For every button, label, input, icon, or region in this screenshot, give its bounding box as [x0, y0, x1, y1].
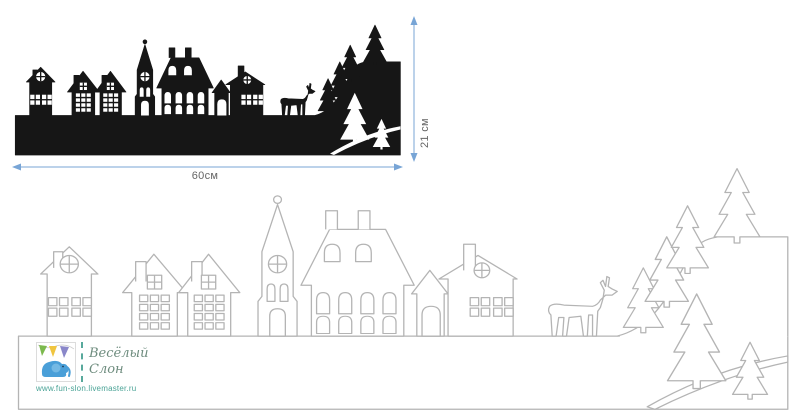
village-silhouette-preview [12, 15, 403, 157]
arched-door [141, 101, 149, 116]
chimney [464, 244, 476, 270]
chimney [102, 75, 107, 86]
spire-knob [274, 196, 282, 203]
deer [281, 83, 315, 115]
elephant-ear [52, 364, 61, 373]
deer [549, 277, 618, 337]
arched-door [217, 99, 226, 115]
house-3 [179, 254, 240, 336]
chimney [136, 262, 146, 282]
fir-tree [667, 206, 709, 274]
fir-tree [364, 25, 387, 65]
manor-house [157, 48, 214, 116]
church-tower [135, 40, 155, 116]
chimney [74, 75, 79, 86]
manor-house [301, 211, 414, 336]
logo: Весёлый Слон www.fun-slon.livemaster.ru [36, 342, 176, 393]
chimney [326, 211, 338, 230]
house-3 [95, 71, 126, 115]
page-canvas: 60см 21 см [0, 0, 800, 418]
chimney [358, 211, 370, 230]
chimney [185, 48, 191, 58]
church-tower [258, 196, 297, 336]
house-2 [123, 254, 187, 336]
village-scene [15, 25, 400, 155]
arched-door [270, 309, 286, 336]
elephant-logo-icon [36, 342, 76, 382]
spire-knob [143, 40, 147, 44]
elephant-eye [62, 366, 64, 368]
house-1 [41, 247, 98, 336]
logo-title: Весёлый Слон [89, 346, 148, 379]
arched-door [422, 306, 440, 336]
house-1 [26, 67, 55, 115]
chimney [169, 48, 175, 58]
fir-tree [714, 169, 760, 243]
height-dimension-label: 21 см [419, 52, 431, 148]
chimney [238, 66, 244, 80]
logo-url: www.fun-slon.livemaster.ru [36, 384, 176, 393]
chimney [192, 262, 202, 282]
house-6 [412, 244, 517, 336]
logo-divider [81, 342, 83, 382]
fir-tree [340, 45, 361, 82]
house-6 [212, 66, 265, 116]
house-2 [67, 71, 99, 115]
